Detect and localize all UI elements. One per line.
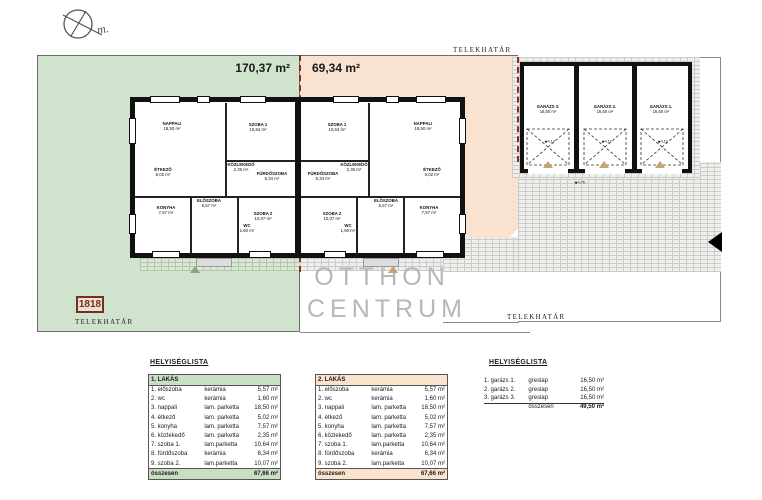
- interior-wall: [225, 103, 227, 197]
- room-area: 1,60 m²: [246, 396, 278, 402]
- room-name: 5. konyha: [151, 424, 204, 430]
- total-value: 67,66 m²: [246, 471, 278, 477]
- interior-wall: [237, 196, 239, 253]
- garage-front-dim: 4,76: [575, 181, 585, 185]
- room-area: 5,02 m²: [246, 415, 278, 421]
- parcel-left-area-label: 170,37 m²: [160, 61, 290, 75]
- window: [324, 251, 346, 258]
- roomlist-title-right: HELYISÉGLISTA: [489, 359, 547, 366]
- table-row: 8. fürdőszobakerámia6,34 m²: [149, 450, 280, 459]
- window: [150, 96, 180, 103]
- room-material: lam.parketta: [204, 461, 246, 467]
- watermark-line2: CENTRUM: [307, 295, 457, 324]
- table-row: 1. előszobakerámia5,57 m²: [316, 386, 447, 395]
- table-row: 9. szoba 2.lam.parketta10,07 m²: [149, 459, 280, 468]
- garage-forecourt-paving: [518, 162, 721, 272]
- table-header-label: 2. LAKÁS: [318, 377, 371, 383]
- site-plan-canvas: m. TELEKHATÁR TELEKHATÁR TELEKHATÁR 170,…: [0, 0, 762, 500]
- total-label: összesen: [151, 471, 204, 477]
- room-area: 10,07 m²: [413, 461, 445, 467]
- room-material: lam. parketta: [371, 415, 413, 421]
- interior-wall: [190, 196, 192, 253]
- garage-area: 16,50 m²: [568, 395, 604, 401]
- north-compass-icon: [58, 4, 118, 48]
- table-row: 2. wckerámia1,60 m²: [149, 395, 280, 404]
- garage-door-dim-value: 4,12: [548, 140, 555, 144]
- window: [333, 96, 359, 103]
- apartment2-table: 2. LAKÁS1. előszobakerámia5,57 m²2. wcke…: [315, 374, 448, 480]
- room-name: 7. szoba 1.: [318, 442, 371, 448]
- window: [416, 96, 446, 103]
- room-area: 2,35 m²: [413, 433, 445, 439]
- parcel-number-badge: 1818: [76, 296, 104, 313]
- room-material: kerámia: [204, 387, 246, 393]
- room-name: 6. közlekedő: [318, 433, 371, 439]
- garage-door-opening: [528, 169, 568, 174]
- room-area: 10,64 m²: [413, 442, 445, 448]
- garage-door-dim: 4,12: [545, 140, 555, 144]
- room-name: 4. étkező: [151, 415, 204, 421]
- table-row: 1. garázs 1.greslap16,50 m²: [484, 377, 604, 386]
- table-row: 3. nappalilam. parketta18,50 m²: [149, 404, 280, 413]
- room-name: 6. közlekedő: [151, 433, 204, 439]
- room-material: lam. parketta: [204, 433, 246, 439]
- garage-marker-icon: [543, 161, 553, 168]
- room-name: 8. fürdőszoba: [318, 451, 371, 457]
- room-material: kerámia: [371, 387, 413, 393]
- boundary-label-bottom-left: TELEKHATÁR: [75, 318, 134, 326]
- room-name: 1. előszoba: [151, 387, 204, 393]
- entrance-steps-left: [196, 258, 232, 267]
- garage-bay-1-area: 16,50 m²: [653, 110, 670, 114]
- room-area: 5,57 m²: [246, 387, 278, 393]
- interior-wall: [135, 196, 295, 198]
- room-area: 10,64 m²: [246, 442, 278, 448]
- table-row: összesen67,66 m²: [316, 468, 447, 479]
- room-material: lam. parketta: [204, 424, 246, 430]
- room-name: 1. előszoba: [318, 387, 371, 393]
- window: [240, 96, 266, 103]
- watermark-line1: OTTHON: [307, 263, 457, 292]
- table-row: 7. szoba 1.lam.parketta10,64 m²: [316, 441, 447, 450]
- table-row: 3. garázs 3.greslap16,50 m²: [484, 394, 604, 403]
- room-material: kerámia: [204, 451, 246, 457]
- boundary-line-top: [300, 55, 518, 56]
- garage-material: greslap: [528, 395, 568, 401]
- room-area: 7,57 m²: [413, 424, 445, 430]
- table-row: 2. garázs 2.greslap16,50 m²: [484, 386, 604, 395]
- garage-bay-1-label: GARÁZS 1. 16,50 m²: [650, 105, 672, 115]
- room-area: 5,57 m²: [413, 387, 445, 393]
- boundary-label-bottom-right: TELEKHATÁR: [507, 313, 566, 321]
- table-row: 1. LAKÁS: [149, 375, 280, 386]
- window: [386, 96, 399, 103]
- room-area: 10,07 m²: [246, 461, 278, 467]
- boundary-line-bottom-left-ext: [300, 332, 530, 333]
- room-name: 9. szoba 2.: [151, 461, 204, 467]
- room-name: 9. szoba 2.: [318, 461, 371, 467]
- garage-name: 2. garázs 2.: [484, 387, 528, 393]
- boundary-label-top: TELEKHATÁR: [453, 46, 512, 54]
- room-name: 7. szoba 1.: [151, 442, 204, 448]
- party-wall: [295, 97, 301, 258]
- table-row: 8. fürdőszobakerámia6,34 m²: [316, 450, 447, 459]
- room-area: 6,34 m²: [246, 451, 278, 457]
- table-row: 9. szoba 2.lam.parketta10,07 m²: [316, 459, 447, 468]
- table-row: összesen67,66 m²: [149, 468, 280, 479]
- garage-door-opening: [585, 169, 625, 174]
- room-name: 2. wc: [151, 396, 204, 402]
- room-material: lam.parketta: [371, 442, 413, 448]
- garage-door-dim-value: 4,12: [661, 140, 668, 144]
- interior-wall: [301, 160, 370, 162]
- room-area: 1,60 m²: [413, 396, 445, 402]
- garage-material: greslap: [528, 378, 568, 384]
- room-name: 8. fürdőszoba: [151, 451, 204, 457]
- garage-name: 3. garázs 3.: [484, 395, 528, 401]
- interior-wall: [403, 196, 405, 253]
- room-area: 6,34 m²: [413, 451, 445, 457]
- garage-name: 1. garázs 1.: [484, 378, 528, 384]
- window: [152, 251, 180, 258]
- room-area: 18,50 m²: [246, 405, 278, 411]
- total-value: 67,66 m²: [413, 471, 445, 477]
- window: [197, 96, 210, 103]
- interior-wall: [301, 196, 460, 198]
- room-material: lam. parketta: [371, 405, 413, 411]
- room-material: lam. parketta: [371, 433, 413, 439]
- garage-area: 16,50 m²: [568, 387, 604, 393]
- garage-door-dim-value: 4,12: [605, 140, 612, 144]
- garage-door-dim: 4,12: [658, 140, 668, 144]
- total-value: 49,50 m²: [568, 404, 604, 410]
- table-row: 4. étkezőlam. parketta5,02 m²: [316, 413, 447, 422]
- entrance-marker-icon: [190, 266, 200, 273]
- table-row: összesen49,50 m²: [484, 403, 604, 412]
- table-row: 5. konyhalam. parketta7,57 m²: [149, 422, 280, 431]
- interior-wall: [368, 103, 370, 197]
- room-area: 18,50 m²: [413, 405, 445, 411]
- garage-list: 1. garázs 1.greslap16,50 m²2. garázs 2.g…: [484, 377, 604, 411]
- garage-marker-icon: [599, 161, 609, 168]
- total-label: összesen: [528, 404, 568, 410]
- garage-area: 16,50 m²: [568, 378, 604, 384]
- parcel-right-area-label: 69,34 m²: [312, 61, 360, 75]
- total-label: összesen: [318, 471, 371, 477]
- window: [459, 118, 466, 144]
- room-material: kerámia: [371, 451, 413, 457]
- room-name: 5. konyha: [318, 424, 371, 430]
- table-row: 6. közlekedőlam. parketta2,35 m²: [316, 431, 447, 440]
- table-row: 3. nappalilam. parketta18,50 m²: [316, 404, 447, 413]
- interior-wall: [225, 160, 295, 162]
- room-name: 3. nappali: [151, 405, 204, 411]
- section-marker-icon: [708, 232, 722, 252]
- garage-bay-3-area: 16,50 m²: [540, 110, 557, 114]
- garage-bay-2-label: GARÁZS 2. 16,50 m²: [594, 105, 616, 115]
- room-area: 7,57 m²: [246, 424, 278, 430]
- interior-wall: [356, 196, 358, 253]
- entrance-marker-icon: [388, 266, 398, 273]
- table-row: 7. szoba 1.lam.parketta10,64 m²: [149, 441, 280, 450]
- room-area: 5,02 m²: [413, 415, 445, 421]
- window: [416, 251, 444, 258]
- table-header-label: 1. LAKÁS: [151, 377, 204, 383]
- garage-bay-2-area: 16,50 m²: [597, 110, 614, 114]
- garage-front-dim-value: 4,76: [578, 181, 585, 185]
- room-material: lam. parketta: [204, 415, 246, 421]
- room-name: 2. wc: [318, 396, 371, 402]
- window: [129, 214, 136, 234]
- table-row: 2. wckerámia1,60 m²: [316, 395, 447, 404]
- garage-divider-wall: [574, 66, 579, 169]
- room-material: lam. parketta: [204, 405, 246, 411]
- garage-material: greslap: [528, 387, 568, 393]
- window: [249, 251, 271, 258]
- room-material: kerámia: [371, 396, 413, 402]
- garage-door-dim: 4,12: [602, 140, 612, 144]
- garage-door-opening: [642, 169, 682, 174]
- table-row: 5. konyhalam. parketta7,57 m²: [316, 422, 447, 431]
- window: [129, 118, 136, 144]
- room-area: 2,35 m²: [246, 433, 278, 439]
- garage-bay-3-label: GARÁZS 3. 16,50 m²: [537, 105, 559, 115]
- parcel-right-edge-line: [517, 57, 519, 162]
- window: [459, 214, 466, 234]
- table-row: 4. étkezőlam. parketta5,02 m²: [149, 413, 280, 422]
- table-row: 2. LAKÁS: [316, 375, 447, 386]
- garage-marker-icon: [655, 161, 665, 168]
- room-material: kerámia: [204, 396, 246, 402]
- garage-divider-wall: [632, 66, 637, 169]
- room-material: lam.parketta: [371, 461, 413, 467]
- room-material: lam.parketta: [204, 442, 246, 448]
- apartment1-table: 1. LAKÁS1. előszobakerámia5,57 m²2. wcke…: [148, 374, 281, 480]
- table-row: 6. közlekedőlam. parketta2,35 m²: [149, 431, 280, 440]
- room-material: lam. parketta: [371, 424, 413, 430]
- roomlist-title-left: HELYISÉGLISTA: [150, 359, 208, 366]
- table-row: 1. előszobakerámia5,57 m²: [149, 386, 280, 395]
- room-name: 3. nappali: [318, 405, 371, 411]
- room-name: 4. étkező: [318, 415, 371, 421]
